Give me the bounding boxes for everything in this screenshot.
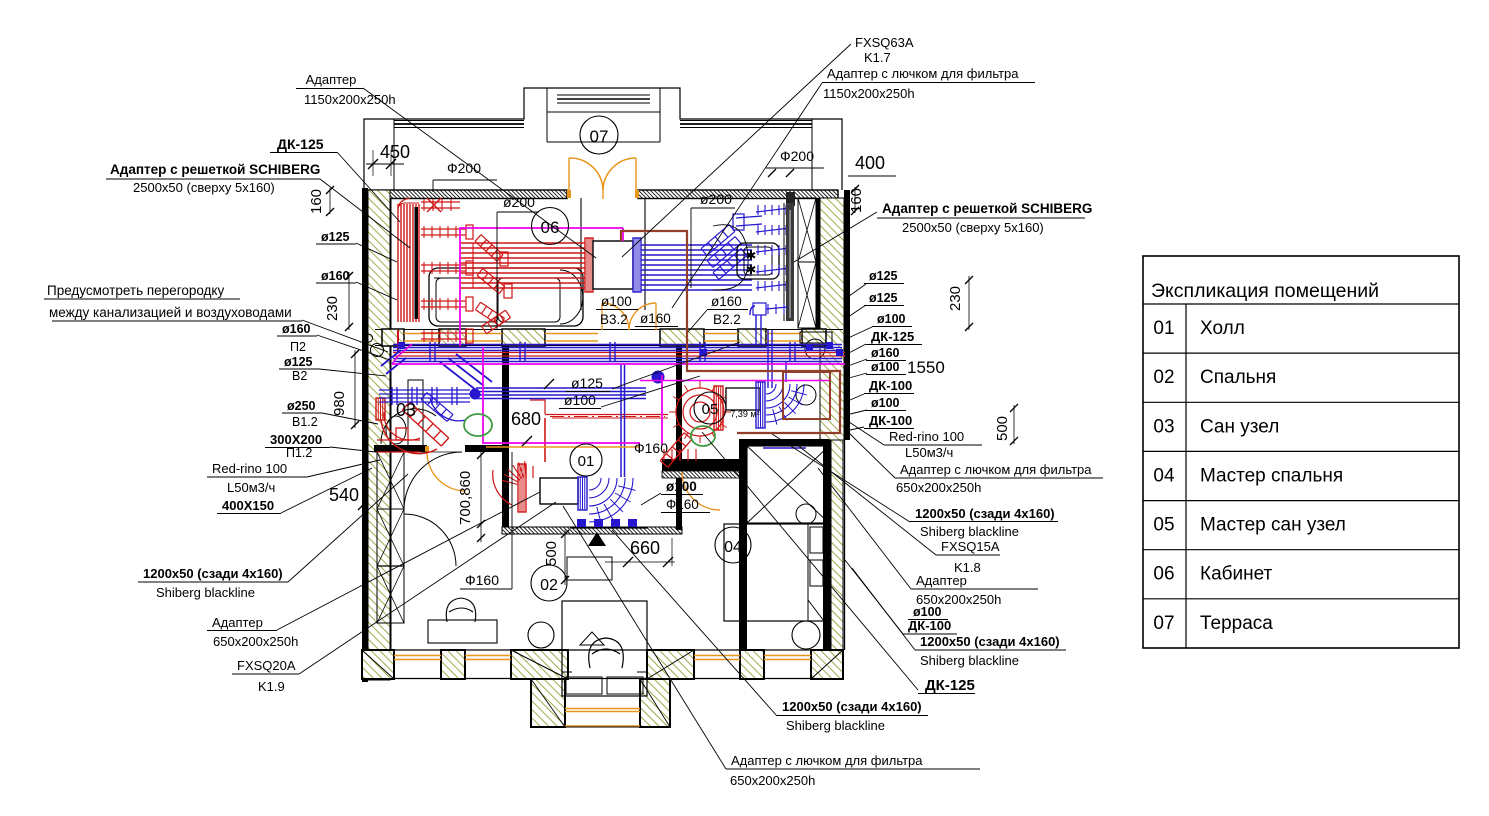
- svg-text:Адаптер: Адаптер: [306, 72, 357, 87]
- svg-text:В1.2: В1.2: [292, 415, 318, 429]
- svg-text:2500x50 (сверху 5x160): 2500x50 (сверху 5x160): [133, 180, 275, 195]
- svg-text:1150x200x250h: 1150x200x250h: [304, 92, 396, 107]
- svg-text:Экспликация помещений: Экспликация помещений: [1151, 280, 1379, 302]
- svg-text:ø160: ø160: [282, 322, 311, 336]
- svg-text:400: 400: [855, 153, 885, 173]
- svg-text:Red-rino 100: Red-rino 100: [212, 461, 287, 476]
- svg-text:Shiberg blackline: Shiberg blackline: [786, 718, 885, 733]
- svg-text:05: 05: [1153, 515, 1174, 536]
- svg-text:06: 06: [541, 218, 560, 237]
- svg-text:700,860: 700,860: [457, 471, 474, 525]
- svg-text:K1.9: K1.9: [258, 679, 285, 694]
- svg-text:ø160: ø160: [321, 269, 350, 283]
- svg-text:ø125: ø125: [869, 269, 898, 283]
- svg-text:980: 980: [331, 391, 348, 416]
- svg-text:Адаптер с лючком для фильтра: Адаптер с лючком для фильтра: [731, 753, 923, 768]
- svg-text:ø100: ø100: [666, 479, 697, 494]
- svg-text:Ф200: Ф200: [780, 148, 814, 164]
- svg-text:02: 02: [540, 577, 558, 594]
- svg-text:500: 500: [994, 416, 1011, 441]
- svg-text:Shiberg blackline: Shiberg blackline: [920, 653, 1019, 668]
- svg-text:ДК-100: ДК-100: [869, 413, 912, 428]
- svg-text:Холл: Холл: [1200, 318, 1245, 339]
- svg-text:1150x200x250h: 1150x200x250h: [823, 86, 915, 101]
- svg-text:Ф200: Ф200: [447, 160, 481, 176]
- svg-text:L50м3/ч: L50м3/ч: [905, 445, 953, 460]
- svg-text:П2: П2: [290, 340, 306, 354]
- svg-text:1550: 1550: [907, 358, 945, 377]
- svg-text:Адаптер: Адаптер: [916, 573, 967, 588]
- svg-text:07: 07: [1153, 613, 1174, 634]
- svg-text:540: 540: [329, 485, 359, 505]
- svg-text:7,39 м²: 7,39 м²: [730, 409, 759, 419]
- svg-text:ø200: ø200: [700, 191, 732, 207]
- svg-text:400X150: 400X150: [222, 498, 274, 513]
- svg-text:ø200: ø200: [503, 194, 535, 210]
- svg-text:1200x50 (сзади 4x160): 1200x50 (сзади 4x160): [782, 699, 922, 714]
- svg-text:230: 230: [324, 296, 341, 321]
- svg-text:ø100: ø100: [877, 312, 906, 326]
- svg-text:160: 160: [308, 189, 325, 214]
- svg-text:07: 07: [590, 127, 609, 146]
- svg-text:ДК-100: ДК-100: [869, 378, 912, 393]
- svg-text:Ф160: Ф160: [465, 572, 499, 588]
- svg-text:06: 06: [1153, 564, 1174, 585]
- svg-text:П1.2: П1.2: [286, 446, 312, 460]
- svg-text:Shiberg blackline: Shiberg blackline: [156, 585, 255, 600]
- svg-text:01: 01: [1153, 318, 1174, 339]
- svg-text:Ф160: Ф160: [634, 440, 668, 456]
- svg-text:230: 230: [947, 286, 964, 311]
- svg-text:В3.2: В3.2: [600, 312, 628, 327]
- svg-text:между канализацией и воздухово: между канализацией и воздуховодами: [49, 305, 292, 320]
- svg-text:03: 03: [396, 400, 416, 420]
- svg-text:1200x50 (сзади 4x160): 1200x50 (сзади 4x160): [915, 506, 1055, 521]
- svg-text:650x200x250h: 650x200x250h: [896, 480, 981, 495]
- svg-text:ø100: ø100: [913, 605, 942, 619]
- svg-text:Адаптер с лючком для фильтра: Адаптер с лючком для фильтра: [900, 462, 1092, 477]
- svg-text:Спальня: Спальня: [1200, 367, 1276, 388]
- svg-text:04: 04: [1153, 465, 1175, 486]
- svg-text:02: 02: [1153, 367, 1174, 388]
- svg-text:FXSQ15A: FXSQ15A: [941, 539, 1000, 554]
- svg-text:03: 03: [1153, 416, 1174, 437]
- svg-text:Предусмотреть перегородку: Предусмотреть перегородку: [47, 283, 224, 298]
- svg-text:650x200x250h: 650x200x250h: [213, 634, 298, 649]
- svg-text:500: 500: [543, 541, 560, 566]
- svg-text:ДК-100: ДК-100: [908, 618, 951, 633]
- svg-text:ø160: ø160: [871, 346, 900, 360]
- svg-text:Ф160: Ф160: [666, 497, 699, 512]
- svg-text:450: 450: [380, 142, 410, 162]
- svg-text:Адаптер с решеткой SCHIBERG: Адаптер с решеткой SCHIBERG: [882, 201, 1092, 216]
- svg-text:Адаптер с решеткой SCHIBERG: Адаптер с решеткой SCHIBERG: [110, 162, 320, 177]
- svg-text:1200x50 (сзади 4x160): 1200x50 (сзади 4x160): [920, 634, 1060, 649]
- svg-text:ø125: ø125: [284, 355, 313, 369]
- svg-text:Адаптер с лючком для фильтра: Адаптер с лючком для фильтра: [827, 66, 1019, 81]
- svg-text:ø100: ø100: [871, 360, 900, 374]
- svg-text:Кабинет: Кабинет: [1200, 564, 1273, 585]
- svg-text:В2: В2: [292, 369, 307, 383]
- svg-text:Мастер сан узел: Мастер сан узел: [1200, 515, 1346, 536]
- svg-text:ø100: ø100: [871, 396, 900, 410]
- svg-text:ø160: ø160: [640, 311, 671, 326]
- svg-text:05: 05: [702, 401, 719, 418]
- svg-text:Терраса: Терраса: [1200, 613, 1273, 634]
- svg-text:K1.7: K1.7: [864, 50, 891, 65]
- svg-text:ДК-125: ДК-125: [871, 329, 914, 344]
- svg-text:Мастер спальня: Мастер спальня: [1200, 465, 1343, 486]
- svg-text:ø160: ø160: [711, 294, 742, 309]
- svg-text:660: 660: [630, 538, 660, 558]
- svg-text:ø125: ø125: [321, 230, 350, 244]
- svg-text:Red-rino 100: Red-rino 100: [889, 429, 964, 444]
- svg-text:300X200: 300X200: [270, 432, 322, 447]
- svg-text:ø125: ø125: [869, 291, 898, 305]
- svg-text:680: 680: [511, 409, 541, 429]
- svg-text:2500x50 (сверху 5x160): 2500x50 (сверху 5x160): [902, 220, 1044, 235]
- svg-text:L50м3/ч: L50м3/ч: [227, 480, 275, 495]
- svg-text:Сан узел: Сан узел: [1200, 416, 1279, 437]
- svg-text:ДК-125: ДК-125: [925, 677, 975, 694]
- svg-text:ø100: ø100: [564, 392, 596, 408]
- svg-text:Shiberg blackline: Shiberg blackline: [920, 524, 1019, 539]
- svg-text:В2.2: В2.2: [713, 312, 741, 327]
- svg-text:ø250: ø250: [287, 399, 316, 413]
- svg-text:FXSQ63A: FXSQ63A: [855, 35, 914, 50]
- svg-text:ДК-125: ДК-125: [277, 136, 324, 152]
- svg-text:FXSQ20A: FXSQ20A: [237, 658, 296, 673]
- svg-text:ø100: ø100: [601, 294, 632, 309]
- svg-text:04: 04: [724, 539, 742, 556]
- svg-text:ø125: ø125: [571, 375, 603, 391]
- svg-text:Адаптер: Адаптер: [212, 615, 263, 630]
- svg-text:1200x50 (сзади 4x160): 1200x50 (сзади 4x160): [143, 566, 283, 581]
- svg-text:01: 01: [578, 453, 595, 470]
- svg-text:650x200x250h: 650x200x250h: [730, 773, 815, 788]
